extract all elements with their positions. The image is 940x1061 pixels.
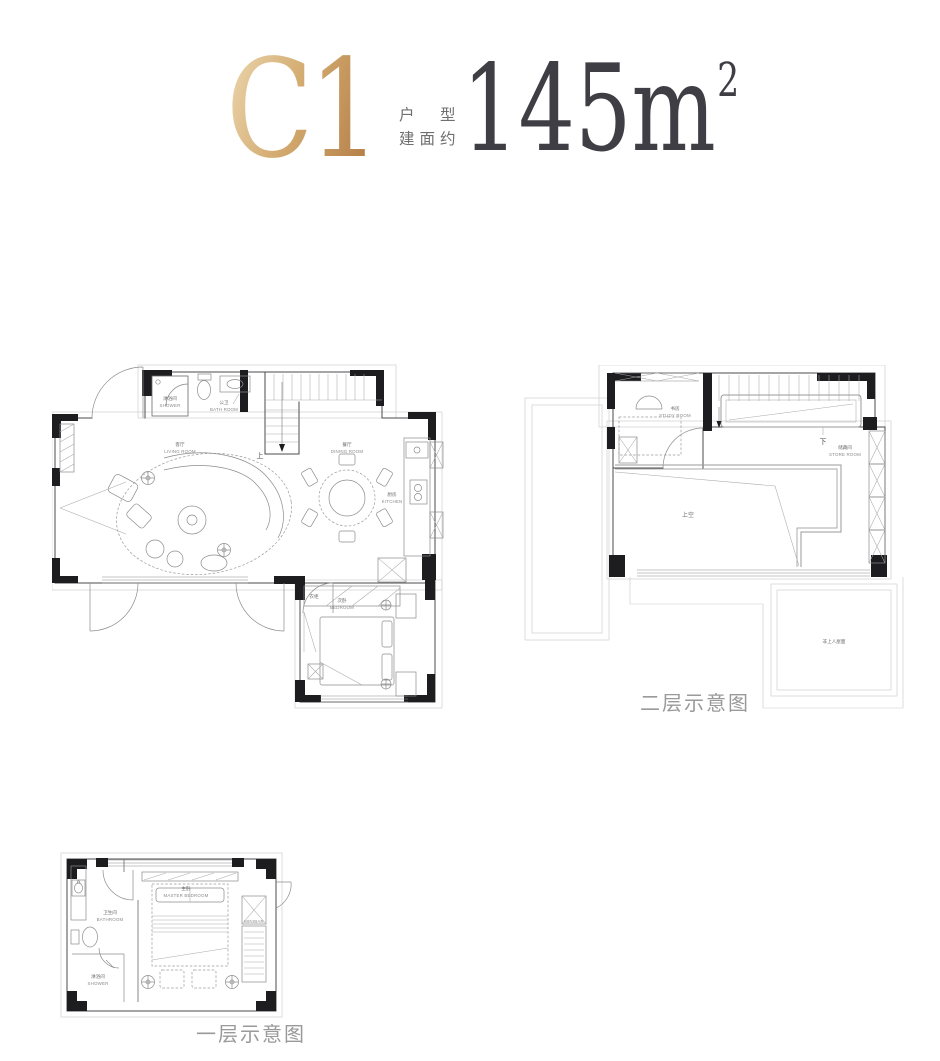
label-kitchen-en: KITCHEN bbox=[382, 499, 403, 504]
unit-area: 145m2 bbox=[462, 48, 739, 173]
void-guard bbox=[615, 465, 870, 576]
terrace-windows bbox=[90, 577, 284, 631]
floorplan-poster: C1 户 型 建面约 145m2 bbox=[0, 0, 940, 1061]
label-master-cn: 主卧 bbox=[181, 885, 191, 892]
entrance-door-arc bbox=[92, 367, 143, 418]
stairs-up-label: 上 bbox=[257, 451, 264, 460]
label-roof: 非上人屋面 bbox=[823, 638, 846, 645]
label-store-cn: 储藏间 bbox=[838, 444, 852, 451]
dining-furniture bbox=[301, 454, 393, 542]
label-bath-cn: 公卫 bbox=[219, 400, 229, 405]
outer-outline bbox=[61, 853, 282, 1017]
unit-code: C1 bbox=[226, 36, 376, 186]
label-minibar: MINIBAR bbox=[244, 919, 264, 924]
label-master-shower-cn: 淋浴间 bbox=[91, 973, 105, 980]
second-floor-caption: 二层示意图 bbox=[640, 687, 750, 716]
bedroom-furniture bbox=[303, 583, 416, 702]
walls bbox=[52, 370, 436, 702]
label-bathroom-en: BATHROOM bbox=[97, 917, 124, 922]
unit-subtitle: 户 型 建面约 bbox=[399, 104, 461, 152]
label-master-en: MASTER BEDROOM bbox=[163, 893, 208, 898]
study-door-arc bbox=[663, 428, 703, 468]
first-floor-caption: 一层示意图 bbox=[196, 1018, 306, 1047]
storage-cabinets bbox=[869, 431, 885, 563]
first-floor-master-plan: 卫生间 BATHROOM 淋浴间 SHOWER 主卧 MASTER BEDROO… bbox=[60, 852, 295, 1020]
label-shower-en: SHOWER bbox=[160, 403, 181, 408]
label-master-shower-en: SHOWER bbox=[88, 981, 109, 986]
label-wardrobe: 衣柜 bbox=[309, 593, 319, 600]
label-bedroom-en: BEDROOM bbox=[330, 605, 354, 610]
label-kitchen-cn: 厨房 bbox=[387, 491, 397, 498]
label-shower-cn: 淋浴间 bbox=[163, 395, 177, 402]
roof-outlines bbox=[525, 365, 903, 708]
unit-subtitle-line2: 建面约 bbox=[399, 128, 461, 152]
unit-subtitle-line1: 户 型 bbox=[399, 104, 461, 128]
label-void: 上空 bbox=[682, 511, 694, 519]
area-value: 145m bbox=[462, 40, 716, 179]
stairs-down-label: 下 bbox=[820, 438, 827, 446]
minibar-unit bbox=[242, 896, 266, 982]
first-floor-main-plan: 上 淋浴间 SHOWER 公卫 BATH ROOM 客厅 LIVING ROOM bbox=[52, 362, 452, 717]
label-study-cn: 书房 bbox=[670, 405, 680, 412]
stairs-up bbox=[265, 374, 382, 452]
label-bath-en: BATH ROOM bbox=[210, 407, 238, 412]
second-floor-plan: 非上人屋面 下 书房 bbox=[523, 365, 908, 710]
area-superscript: 2 bbox=[717, 57, 739, 106]
label-living-cn: 客厅 bbox=[175, 441, 185, 448]
label-bedroom-cn: 次卧 bbox=[337, 597, 347, 604]
label-bathroom-cn: 卫生间 bbox=[103, 909, 117, 916]
outer-outline bbox=[52, 365, 442, 708]
label-dining-en: DINING ROOM bbox=[331, 449, 364, 454]
label-dining-cn: 餐厅 bbox=[342, 441, 352, 448]
label-store-en: STORE ROOM bbox=[829, 452, 861, 457]
stairs-down bbox=[717, 375, 862, 435]
label-study-en: STUDY ROOM bbox=[659, 413, 691, 418]
exterior-door-arc bbox=[276, 882, 291, 908]
study-furniture bbox=[615, 373, 699, 463]
